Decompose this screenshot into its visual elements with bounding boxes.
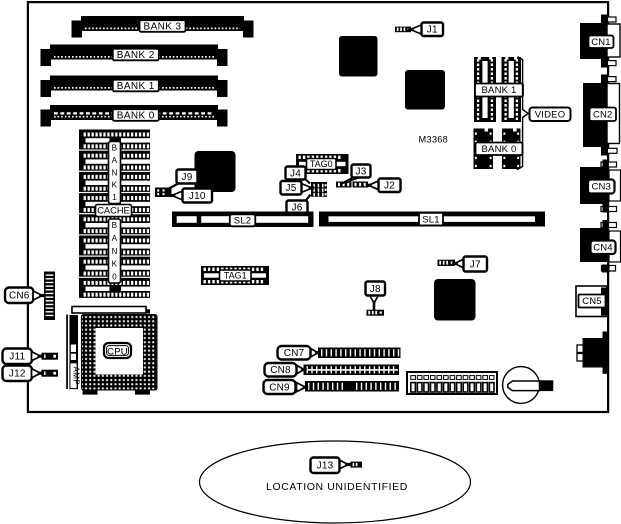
svg-text:J7: J7 bbox=[470, 259, 481, 270]
svg-text:CN6: CN6 bbox=[9, 291, 30, 302]
svg-text:BANK 3: BANK 3 bbox=[144, 21, 182, 32]
svg-text:BANK 0: BANK 0 bbox=[482, 144, 517, 155]
svg-text:1: 1 bbox=[112, 193, 117, 202]
svg-text:TAG0: TAG0 bbox=[310, 159, 333, 169]
svg-text:SL2: SL2 bbox=[234, 216, 252, 227]
svg-text:J8: J8 bbox=[370, 284, 381, 295]
svg-text:A: A bbox=[112, 156, 118, 165]
svg-text:LOCATION UNIDENTIFIED: LOCATION UNIDENTIFIED bbox=[266, 481, 408, 493]
svg-text:B: B bbox=[112, 143, 118, 152]
svg-text:J12: J12 bbox=[9, 369, 26, 380]
svg-text:J1: J1 bbox=[427, 25, 438, 36]
svg-text:J11: J11 bbox=[9, 352, 25, 363]
svg-text:SL1: SL1 bbox=[422, 214, 440, 225]
svg-text:CN2: CN2 bbox=[593, 109, 613, 120]
svg-text:J4: J4 bbox=[290, 168, 301, 179]
svg-text:0: 0 bbox=[112, 272, 117, 281]
svg-text:CPU: CPU bbox=[107, 346, 128, 357]
svg-text:N: N bbox=[111, 247, 117, 256]
svg-text:TAG1: TAG1 bbox=[224, 271, 247, 281]
svg-text:K: K bbox=[112, 260, 118, 269]
svg-text:CN7: CN7 bbox=[284, 348, 305, 359]
svg-text:J9: J9 bbox=[182, 172, 193, 183]
svg-text:J2: J2 bbox=[384, 181, 395, 192]
svg-text:CN9: CN9 bbox=[269, 382, 290, 393]
svg-text:CN3: CN3 bbox=[591, 182, 611, 193]
svg-text:M3368: M3368 bbox=[419, 135, 449, 145]
svg-text:K: K bbox=[112, 181, 118, 190]
svg-text:J5: J5 bbox=[286, 183, 297, 194]
svg-text:J13: J13 bbox=[317, 461, 334, 472]
svg-text:BANK 1: BANK 1 bbox=[482, 85, 517, 96]
svg-text:VIDEO: VIDEO bbox=[535, 109, 566, 120]
svg-text:CACHE: CACHE bbox=[97, 206, 130, 216]
svg-text:AMP: AMP bbox=[72, 367, 81, 386]
svg-text:B: B bbox=[112, 221, 118, 230]
svg-text:BANK 1: BANK 1 bbox=[117, 81, 155, 92]
svg-text:A: A bbox=[112, 234, 118, 243]
svg-text:J3: J3 bbox=[356, 166, 367, 177]
svg-text:BANK 0: BANK 0 bbox=[117, 110, 155, 121]
svg-text:CN8: CN8 bbox=[270, 365, 291, 376]
svg-text:CN5: CN5 bbox=[582, 296, 602, 307]
svg-text:CN1: CN1 bbox=[591, 37, 611, 48]
svg-text:N: N bbox=[111, 168, 117, 177]
svg-text:CN4: CN4 bbox=[593, 242, 613, 253]
svg-text:J10: J10 bbox=[189, 191, 206, 202]
svg-text:BANK 2: BANK 2 bbox=[117, 50, 155, 61]
